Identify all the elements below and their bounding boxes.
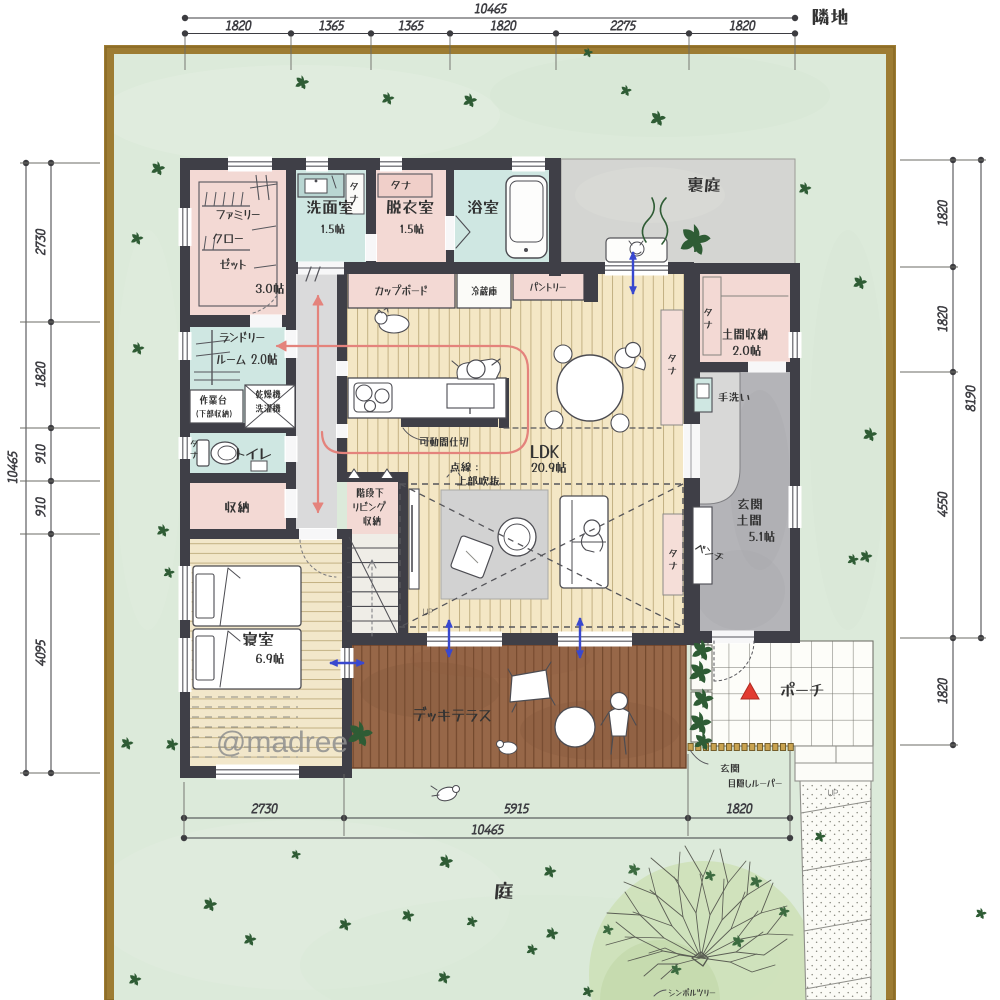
svg-text:@madree: @madree xyxy=(216,726,348,759)
